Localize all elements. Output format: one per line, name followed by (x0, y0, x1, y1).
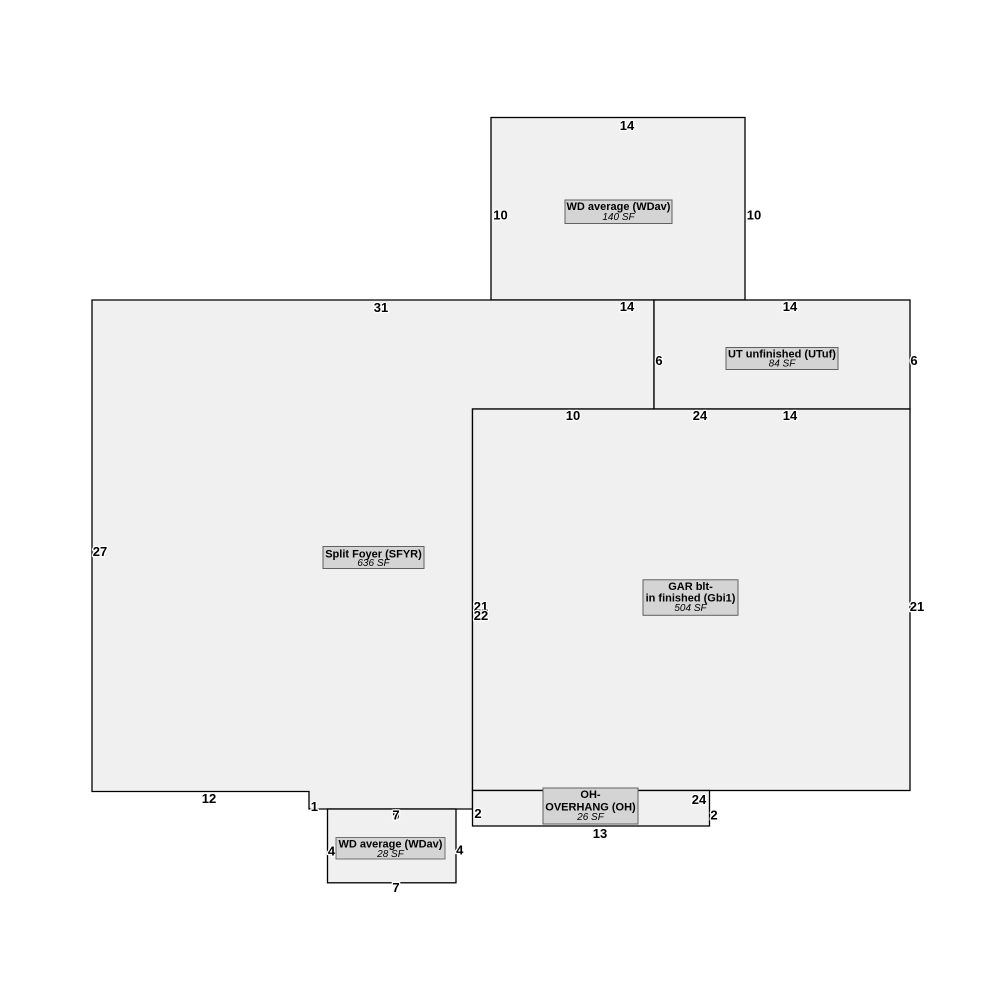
svg-text:10: 10 (566, 408, 580, 423)
svg-text:24: 24 (693, 408, 708, 423)
svg-text:4: 4 (328, 843, 336, 858)
svg-text:4: 4 (456, 843, 464, 858)
svg-text:12: 12 (202, 791, 216, 806)
svg-text:14: 14 (620, 118, 635, 133)
svg-text:504 SF: 504 SF (674, 603, 707, 614)
svg-text:GAR blt-: GAR blt- (668, 581, 713, 593)
svg-text:84 SF: 84 SF (769, 358, 797, 369)
svg-text:24: 24 (692, 792, 707, 807)
svg-text:14: 14 (783, 299, 798, 314)
svg-text:14: 14 (783, 408, 798, 423)
svg-text:31: 31 (374, 300, 388, 315)
svg-text:14: 14 (620, 299, 635, 314)
svg-text:636 SF: 636 SF (357, 558, 390, 569)
svg-text:140 SF: 140 SF (602, 212, 635, 223)
svg-text:7: 7 (392, 808, 399, 823)
svg-text:OH-: OH- (580, 789, 601, 801)
svg-text:21: 21 (910, 599, 924, 614)
svg-text:28 SF: 28 SF (376, 849, 405, 860)
svg-text:22: 22 (474, 608, 488, 623)
svg-text:13: 13 (593, 826, 607, 841)
svg-text:2: 2 (710, 808, 717, 823)
svg-text:1: 1 (311, 799, 318, 814)
svg-text:7: 7 (392, 880, 399, 895)
svg-text:26 SF: 26 SF (576, 812, 605, 823)
svg-text:6: 6 (655, 353, 662, 368)
svg-text:2: 2 (474, 806, 481, 821)
svg-text:10: 10 (493, 208, 507, 223)
svg-text:6: 6 (910, 353, 917, 368)
svg-text:10: 10 (747, 208, 761, 223)
svg-text:27: 27 (93, 544, 107, 559)
